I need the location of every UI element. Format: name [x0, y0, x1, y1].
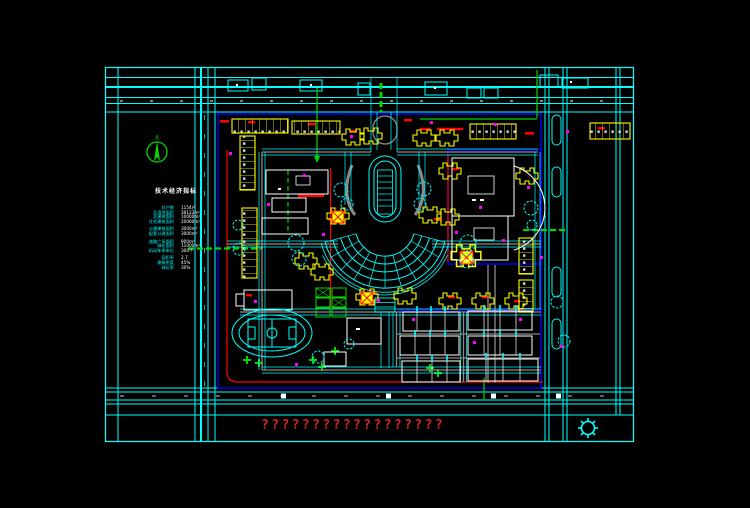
legend-row: 绿化率30%	[128, 266, 224, 271]
gear-icon	[578, 418, 598, 438]
central-plaza	[321, 156, 449, 312]
legend-row: 配套公建面积3000m²	[128, 232, 224, 237]
caption-question-marks: ??????????????????	[261, 418, 481, 433]
legend-row: 机动车停车位300个	[128, 249, 224, 254]
legend-panel: 技术经济指标 总户数1154户 总用地面积39123m² 总建筑面积10000m…	[128, 186, 224, 270]
yellow-slab-buildings	[232, 119, 630, 312]
bottom-road	[106, 388, 633, 415]
north-arrow: 北	[147, 134, 167, 162]
red-label-marks	[220, 119, 605, 302]
road-markers	[281, 394, 561, 399]
white-buildings	[236, 158, 545, 366]
legend-title: 技术经济指标	[128, 186, 224, 195]
cad-canvas: 北 技术经济指标 总户数1154户 总用地面积39123m² 总建筑面积1000…	[0, 0, 750, 508]
north-label: 北	[154, 134, 159, 141]
legend-row: 住宅建筑面积20000m²	[128, 220, 224, 225]
running-track	[232, 309, 312, 357]
